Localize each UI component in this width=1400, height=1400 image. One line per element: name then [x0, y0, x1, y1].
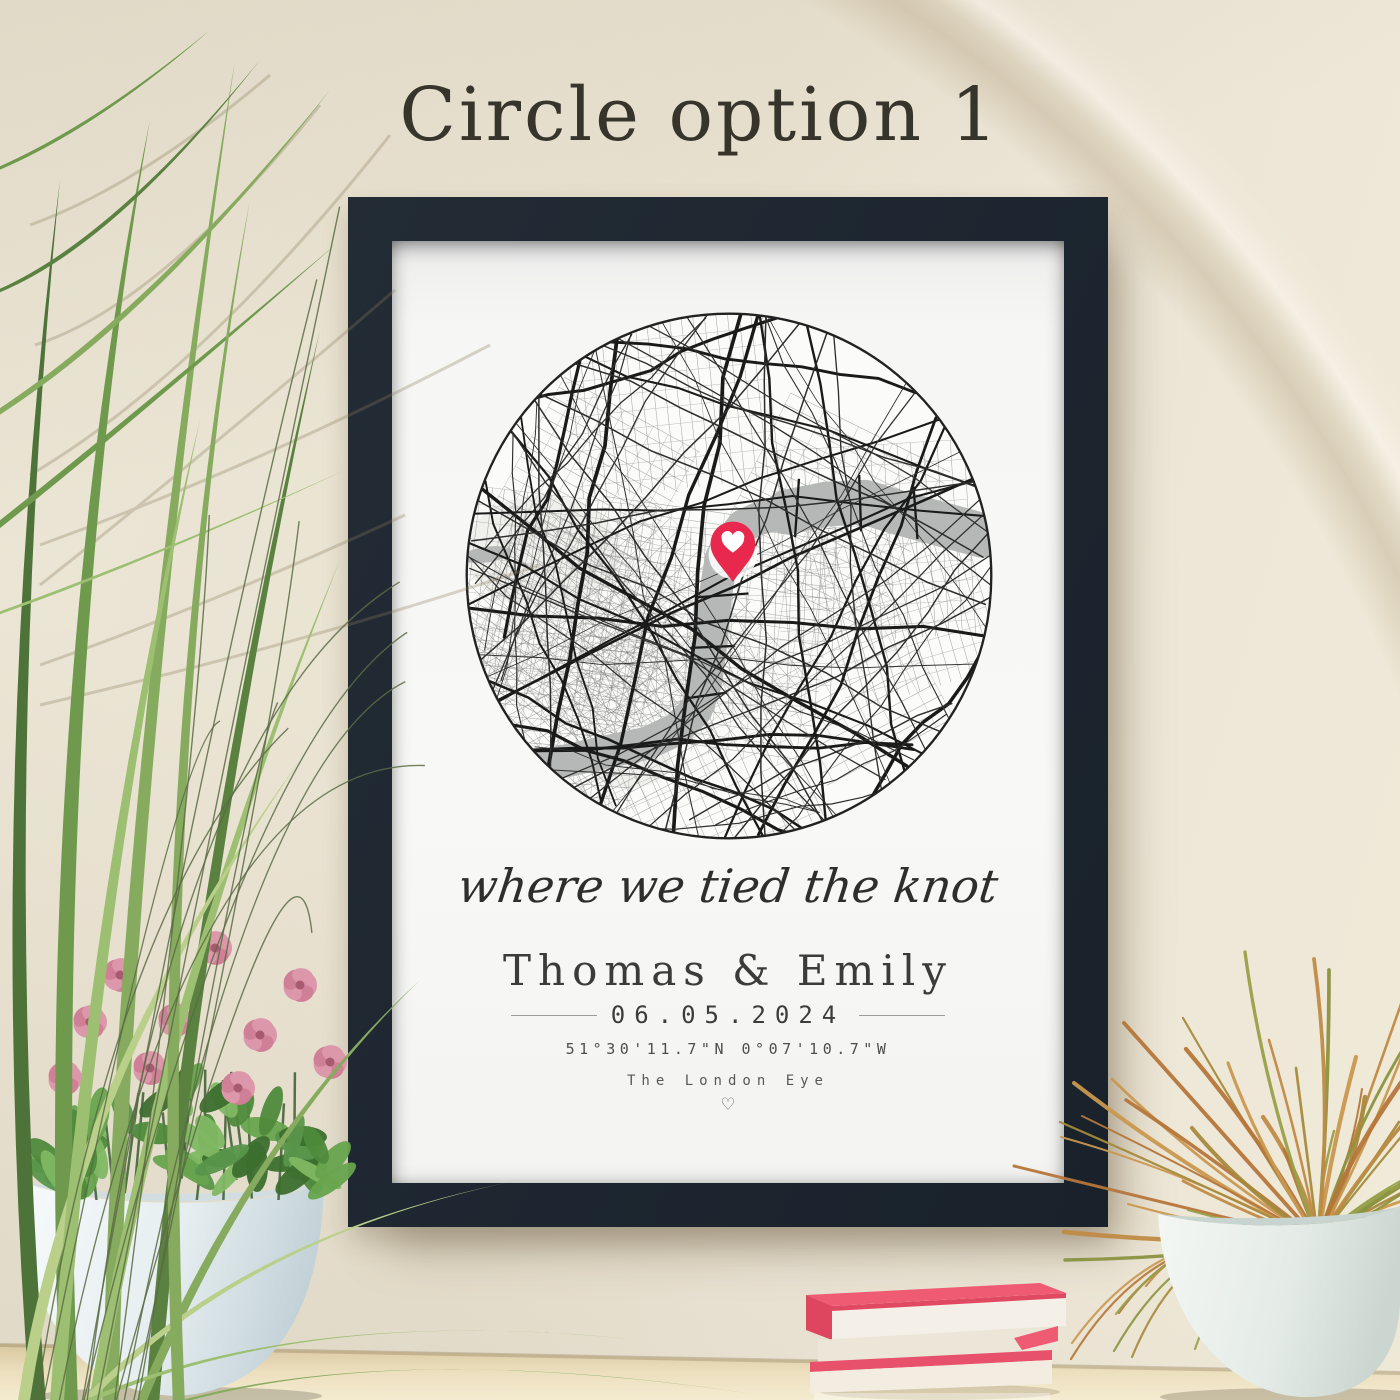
- gps-coordinates: 51°30'11.7"N 0°07'10.7"W: [392, 1040, 1064, 1058]
- date-rule-right: [859, 1015, 945, 1016]
- black-picture-frame: where we tied the knot Thomas & Emily 06…: [348, 197, 1108, 1227]
- location-name: The London Eye: [392, 1073, 1064, 1089]
- map-print-poster: where we tied the knot Thomas & Emily 06…: [392, 241, 1064, 1183]
- product-photo-scene: Circle option 1 where we tied the knot T…: [0, 0, 1400, 1400]
- script-caption: where we tied the knot: [389, 859, 1068, 913]
- circular-city-map: [457, 304, 1001, 848]
- heart-icon: ♡: [392, 1095, 1064, 1115]
- date-rule-left: [511, 1015, 597, 1016]
- wedding-date: 06.05.2024: [611, 1001, 846, 1029]
- option-heading: Circle option 1: [0, 72, 1400, 158]
- wedding-date-row: 06.05.2024: [392, 1001, 1064, 1029]
- couple-names: Thomas & Emily: [392, 946, 1064, 995]
